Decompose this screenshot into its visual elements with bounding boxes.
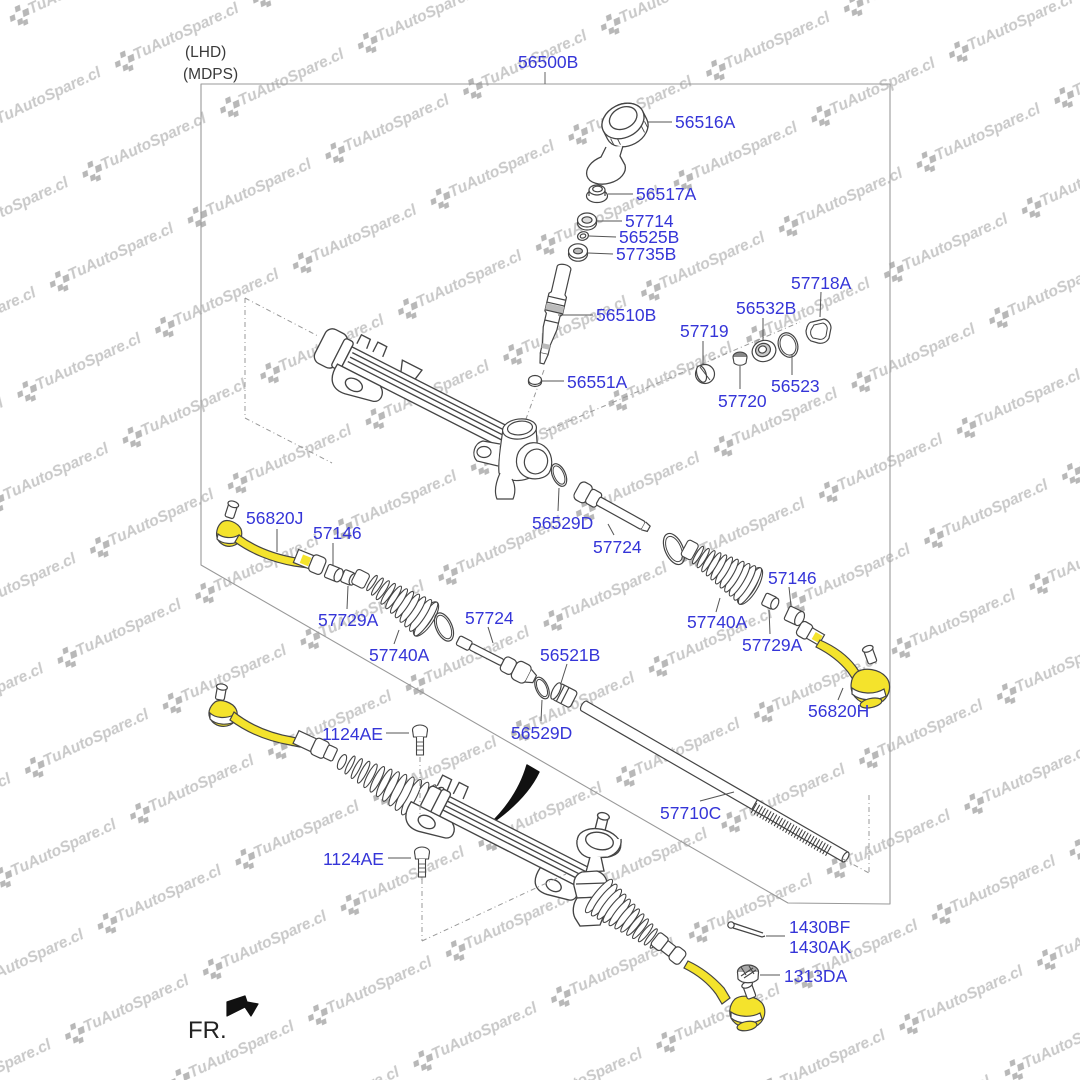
svg-text:57718A: 57718A bbox=[791, 273, 852, 293]
svg-text:(MDPS): (MDPS) bbox=[183, 66, 238, 83]
svg-text:1124AE: 1124AE bbox=[322, 724, 383, 744]
svg-text:56820J: 56820J bbox=[246, 508, 303, 528]
svg-text:57740A: 57740A bbox=[687, 612, 748, 632]
svg-text:57719: 57719 bbox=[680, 321, 729, 341]
svg-text:56532B: 56532B bbox=[736, 298, 796, 318]
svg-text:FR.: FR. bbox=[188, 1017, 227, 1044]
svg-text:56529D: 56529D bbox=[532, 513, 593, 533]
svg-text:57729A: 57729A bbox=[742, 635, 803, 655]
svg-text:56510B: 56510B bbox=[596, 305, 656, 325]
svg-text:56517A: 56517A bbox=[636, 184, 697, 204]
svg-text:1430AK: 1430AK bbox=[789, 937, 852, 957]
svg-text:56516A: 56516A bbox=[675, 112, 736, 132]
svg-text:57740A: 57740A bbox=[369, 645, 430, 665]
svg-text:57720: 57720 bbox=[718, 391, 767, 411]
svg-text:1313DA: 1313DA bbox=[784, 966, 848, 986]
svg-text:57729A: 57729A bbox=[318, 610, 379, 630]
svg-text:57710C: 57710C bbox=[660, 803, 721, 823]
svg-text:56523: 56523 bbox=[771, 376, 820, 396]
svg-text:57146: 57146 bbox=[768, 568, 817, 588]
svg-text:1124AE: 1124AE bbox=[323, 849, 384, 869]
svg-text:56521B: 56521B bbox=[540, 645, 600, 665]
svg-text:56551A: 56551A bbox=[567, 372, 628, 392]
svg-text:56500B: 56500B bbox=[518, 52, 578, 72]
svg-text:56529D: 56529D bbox=[511, 723, 572, 743]
svg-text:57146: 57146 bbox=[313, 523, 362, 543]
svg-text:57735B: 57735B bbox=[616, 244, 676, 264]
svg-text:56820H: 56820H bbox=[808, 701, 869, 721]
svg-text:1430BF: 1430BF bbox=[789, 917, 850, 937]
svg-text:57724: 57724 bbox=[593, 537, 642, 557]
svg-text:57724: 57724 bbox=[465, 608, 514, 628]
svg-text:(LHD): (LHD) bbox=[185, 44, 226, 61]
